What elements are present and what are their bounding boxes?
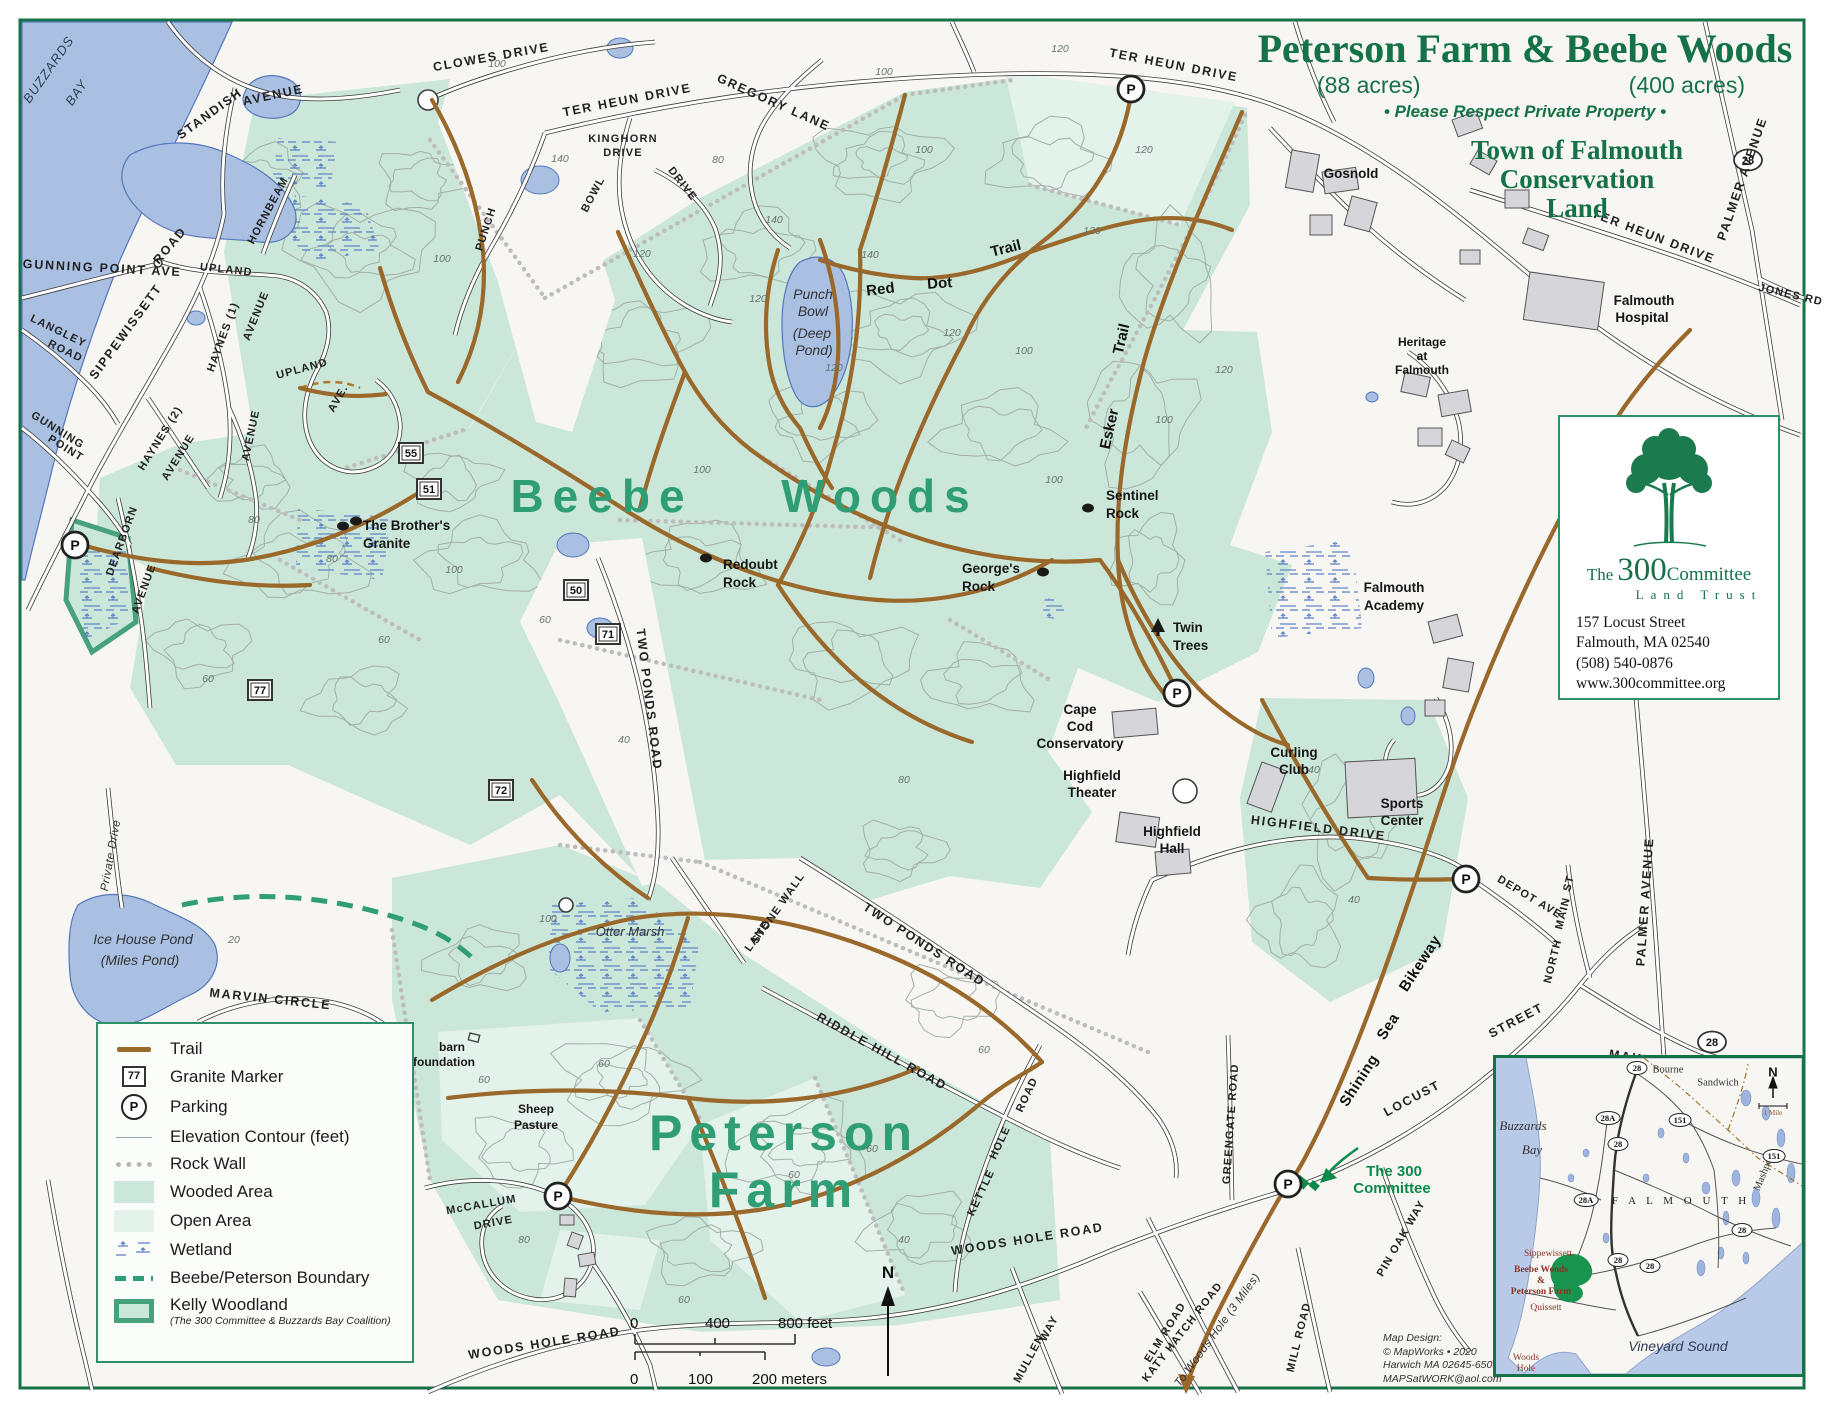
map-label: (Miles Pond) xyxy=(101,952,180,968)
map-label: 60 xyxy=(378,634,390,646)
parking-marker-letter: P xyxy=(1172,685,1181,701)
map-label: 60 xyxy=(202,673,214,685)
map-label: 120 xyxy=(1051,43,1069,55)
building xyxy=(1443,658,1474,692)
map-label: Sentinel xyxy=(1106,488,1159,503)
map-label: Punch xyxy=(793,286,833,302)
trail xyxy=(1368,878,1462,880)
map-label: 20 xyxy=(227,934,240,946)
map-label: 60 xyxy=(539,614,551,626)
map-label: 100 xyxy=(1155,414,1173,426)
map-label: 40 xyxy=(898,1234,910,1246)
map-label: barn xyxy=(439,1040,465,1054)
map-label: Farm xyxy=(709,1162,859,1218)
map-label: Committee xyxy=(1353,1180,1431,1197)
map-label: Highfield xyxy=(1143,824,1201,839)
rock-feature-icon xyxy=(1037,568,1049,577)
map-label: Heritage xyxy=(1398,335,1446,349)
pond xyxy=(1401,707,1415,725)
map-label: Academy xyxy=(1364,598,1425,613)
map-label: 80 xyxy=(898,774,910,786)
map-label: 80 xyxy=(326,553,338,565)
map-label: The 300 xyxy=(1366,1163,1422,1180)
map-label: 40 xyxy=(1308,764,1320,776)
map-canvas: 555150717772PPPPPP2828CLOWES DRIVETER HE… xyxy=(0,0,1824,1408)
map-label: Peterson xyxy=(649,1105,919,1161)
map-label: Cod xyxy=(1067,719,1093,734)
route-28-number: 28 xyxy=(1706,1037,1718,1049)
building xyxy=(1425,700,1445,716)
map-label: Pasture xyxy=(514,1118,558,1132)
map-label: Conservatory xyxy=(1036,736,1124,751)
map-label: Hospital xyxy=(1615,310,1668,325)
map-label: 120 xyxy=(1135,144,1153,156)
map-label: 120 xyxy=(749,293,767,305)
map-label: Woods xyxy=(781,470,978,522)
map-label: 100 xyxy=(915,144,933,156)
rock-feature-icon xyxy=(700,554,712,563)
map-label: (Deep xyxy=(793,325,831,341)
map-label: Rock xyxy=(1106,506,1140,521)
map-label: 100 xyxy=(1015,345,1033,357)
building xyxy=(1112,708,1158,738)
map-label: Club xyxy=(1279,762,1309,777)
map-label: Redoubt xyxy=(723,557,778,572)
pond xyxy=(812,1348,840,1366)
parking-marker-letter: P xyxy=(553,1188,562,1204)
map-label: Otter Marsh xyxy=(596,924,665,939)
map-label: 100 xyxy=(875,66,893,78)
building xyxy=(1418,428,1442,446)
map-label: 120 xyxy=(943,327,961,339)
map-label: Beebe xyxy=(510,470,693,522)
map-label: 100 xyxy=(1045,474,1063,486)
map-label: 60 xyxy=(478,1074,490,1086)
map-label: Bowl xyxy=(798,303,829,319)
granite-marker-number: 71 xyxy=(602,629,614,641)
wetland-area xyxy=(1265,540,1362,638)
granite-marker-number: 72 xyxy=(495,785,507,797)
granite-marker-number: 50 xyxy=(570,585,582,597)
map-label: Ice House Pond xyxy=(93,931,194,947)
map-label: 140 xyxy=(551,153,569,165)
pond xyxy=(1366,392,1378,402)
map-label: Theater xyxy=(1068,785,1118,800)
map-label: Curling xyxy=(1270,745,1317,760)
building xyxy=(1310,215,1332,235)
map-label: Falmouth xyxy=(1364,580,1425,595)
map-label: 120 xyxy=(825,362,843,374)
map-label: Pond) xyxy=(795,342,832,358)
map-label: 120 xyxy=(1083,225,1101,237)
map-label: 100 xyxy=(539,913,557,925)
pond xyxy=(557,533,589,557)
map-label: 140 xyxy=(861,249,879,261)
pond xyxy=(550,944,570,972)
map-label: 40 xyxy=(618,734,630,746)
building xyxy=(578,1252,596,1267)
pond xyxy=(1358,668,1374,688)
map-label: Falmouth xyxy=(1395,363,1449,377)
building xyxy=(563,1278,577,1297)
map-label: 140 xyxy=(765,214,783,226)
map-label: KINGHORN xyxy=(588,133,658,145)
granite-marker-number: 51 xyxy=(423,484,435,496)
map-label: Red xyxy=(865,279,895,299)
parking-marker-letter: P xyxy=(1126,81,1135,97)
map-label: 60 xyxy=(866,1143,878,1155)
map-label: 120 xyxy=(633,248,651,260)
parking-marker-letter: P xyxy=(1283,1176,1292,1192)
map-label: Rock xyxy=(723,575,757,590)
rock-feature-icon xyxy=(337,522,349,531)
map-page: 555150717772PPPPPP2828CLOWES DRIVETER HE… xyxy=(0,0,1824,1408)
rock-feature-icon xyxy=(350,517,362,526)
map-label: Highfield xyxy=(1063,768,1121,783)
twin-trees-icon xyxy=(1157,631,1160,636)
building xyxy=(1523,272,1604,330)
map-label: 120 xyxy=(1215,364,1233,376)
road-circle xyxy=(559,898,573,912)
rock-feature-icon xyxy=(1082,504,1094,513)
building xyxy=(1285,150,1319,192)
map-label: 100 xyxy=(445,564,463,576)
map-label: Trees xyxy=(1173,638,1208,653)
map-label: Rock xyxy=(962,579,996,594)
map-label: Gosnold xyxy=(1324,166,1379,181)
map-label: George's xyxy=(962,561,1020,576)
parking-marker-letter: P xyxy=(70,537,79,553)
map-label: Granite xyxy=(363,536,411,551)
map-label: 60 xyxy=(978,1044,990,1056)
building xyxy=(560,1215,574,1225)
map-label: 80 xyxy=(248,514,260,526)
map-label: 80 xyxy=(518,1234,530,1246)
map-label: Sheep xyxy=(518,1102,554,1116)
map-label: DRIVE xyxy=(603,147,643,159)
map-label: Hall xyxy=(1160,841,1185,856)
granite-marker-number: 77 xyxy=(254,685,266,697)
map-label: 60 xyxy=(598,1058,610,1070)
map-label: Center xyxy=(1381,813,1425,828)
map-label: 60 xyxy=(678,1294,690,1306)
building xyxy=(1505,190,1529,208)
map-label: 100 xyxy=(693,464,711,476)
map-label: foundation xyxy=(413,1055,475,1069)
map-label: at xyxy=(1417,349,1428,363)
map-label: Falmouth xyxy=(1614,293,1675,308)
map-label: 40 xyxy=(1348,894,1360,906)
map-label: Cape xyxy=(1063,702,1097,717)
map-label: Dot xyxy=(927,274,953,293)
map-label: 60 xyxy=(788,1169,800,1181)
wetland-area xyxy=(1042,598,1068,620)
map-label: 100 xyxy=(433,253,451,265)
map-label: The Brother's xyxy=(363,518,450,533)
parking-marker-letter: P xyxy=(1461,871,1470,887)
map-label: Sports xyxy=(1381,796,1424,811)
map-label: 100 xyxy=(488,58,506,70)
building xyxy=(1460,250,1480,264)
map-label: 80 xyxy=(712,154,724,166)
map-label: Twin xyxy=(1173,620,1203,635)
granite-marker-number: 55 xyxy=(405,448,417,460)
road-circle xyxy=(1173,779,1197,803)
building xyxy=(1438,390,1471,417)
